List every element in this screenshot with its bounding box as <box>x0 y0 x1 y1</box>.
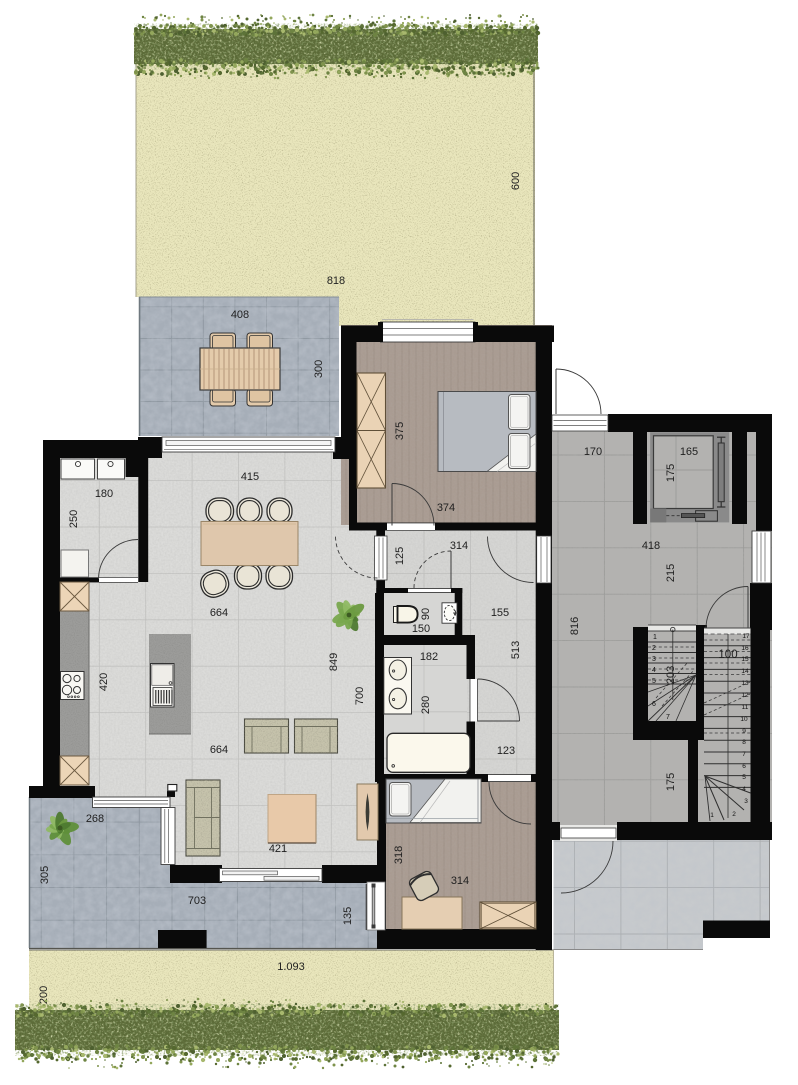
svg-text:135: 135 <box>342 907 354 925</box>
svg-text:180: 180 <box>95 488 113 500</box>
svg-text:268: 268 <box>86 813 104 825</box>
svg-text:170: 170 <box>584 446 602 458</box>
svg-text:125: 125 <box>394 547 406 565</box>
svg-text:90: 90 <box>420 608 432 620</box>
svg-text:17: 17 <box>742 633 750 640</box>
svg-text:11: 11 <box>742 704 749 711</box>
svg-text:13: 13 <box>741 680 749 687</box>
svg-text:250: 250 <box>68 510 80 528</box>
svg-text:6: 6 <box>652 701 656 708</box>
svg-text:2: 2 <box>732 811 736 818</box>
svg-text:123: 123 <box>497 745 515 757</box>
svg-text:175: 175 <box>665 773 677 791</box>
svg-text:9: 9 <box>742 728 746 735</box>
svg-text:2: 2 <box>652 645 656 652</box>
svg-text:600: 600 <box>510 172 522 190</box>
svg-text:15: 15 <box>741 656 749 663</box>
svg-text:375: 375 <box>394 422 406 440</box>
svg-text:374: 374 <box>437 502 455 514</box>
svg-text:300: 300 <box>313 360 325 378</box>
svg-text:182: 182 <box>420 651 438 663</box>
svg-text:7: 7 <box>666 714 670 721</box>
svg-text:165: 165 <box>680 446 698 458</box>
svg-text:1.093: 1.093 <box>277 961 305 973</box>
svg-text:203: 203 <box>665 666 677 684</box>
svg-text:314: 314 <box>450 540 468 552</box>
svg-text:3: 3 <box>652 656 656 663</box>
svg-text:418: 418 <box>642 540 660 552</box>
svg-text:5: 5 <box>652 678 656 685</box>
svg-text:155: 155 <box>491 607 509 619</box>
svg-text:7: 7 <box>742 751 746 758</box>
svg-text:4: 4 <box>742 786 746 793</box>
svg-text:280: 280 <box>420 696 432 714</box>
svg-text:215: 215 <box>665 564 677 582</box>
svg-text:816: 816 <box>569 617 581 635</box>
svg-text:175: 175 <box>665 464 677 482</box>
svg-text:6: 6 <box>742 763 746 770</box>
svg-text:318: 318 <box>393 846 405 864</box>
svg-text:8: 8 <box>742 739 746 746</box>
svg-text:100: 100 <box>718 649 737 661</box>
svg-text:150: 150 <box>412 623 430 635</box>
svg-text:314: 314 <box>451 875 469 887</box>
svg-text:200: 200 <box>38 986 50 1004</box>
svg-text:1: 1 <box>653 634 657 641</box>
svg-text:305: 305 <box>39 866 51 884</box>
svg-text:408: 408 <box>231 309 249 321</box>
svg-text:664: 664 <box>210 607 228 619</box>
svg-text:12: 12 <box>741 692 749 699</box>
svg-text:16: 16 <box>741 645 749 652</box>
svg-text:421: 421 <box>269 843 287 855</box>
svg-text:703: 703 <box>188 895 206 907</box>
svg-text:664: 664 <box>210 744 228 756</box>
svg-text:415: 415 <box>241 471 259 483</box>
svg-text:5: 5 <box>742 774 746 781</box>
svg-text:818: 818 <box>327 275 345 287</box>
svg-text:10: 10 <box>740 716 748 723</box>
svg-text:3: 3 <box>744 798 748 805</box>
svg-text:1: 1 <box>710 812 714 819</box>
svg-text:14: 14 <box>741 668 749 675</box>
svg-text:700: 700 <box>354 687 366 705</box>
svg-text:4: 4 <box>652 667 656 674</box>
svg-text:849: 849 <box>328 653 340 671</box>
svg-text:513: 513 <box>510 641 522 659</box>
svg-text:420: 420 <box>98 673 110 691</box>
